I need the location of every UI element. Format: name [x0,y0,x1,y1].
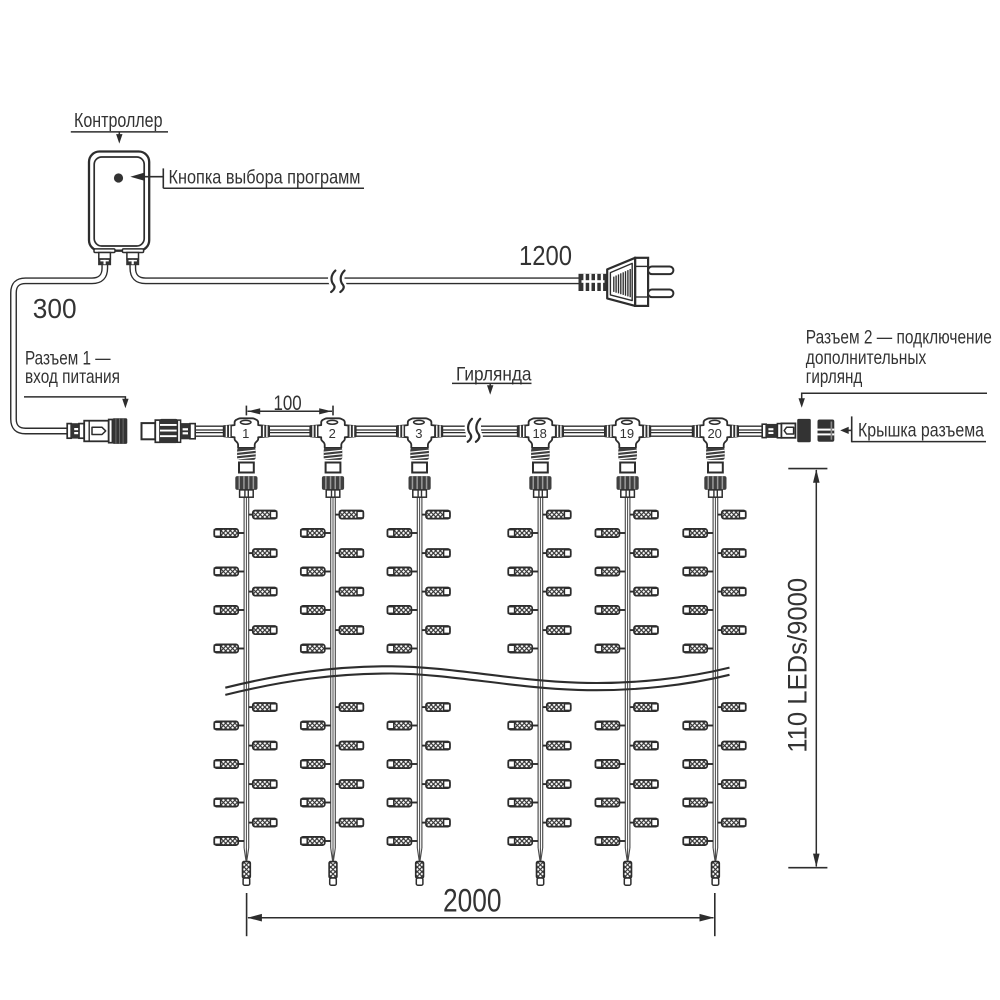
svg-text:18: 18 [532,426,546,441]
svg-text:19: 19 [620,426,634,441]
svg-text:1: 1 [242,426,249,441]
svg-text:2000: 2000 [443,883,502,919]
svg-text:20: 20 [707,426,721,441]
svg-text:3: 3 [415,426,422,441]
svg-text:Крышка разъема: Крышка разъема [858,420,984,442]
svg-text:Разъем 2 — подключение: Разъем 2 — подключение [806,326,992,348]
svg-text:1200: 1200 [519,240,572,271]
svg-text:вход питания: вход питания [25,366,120,388]
svg-text:Контроллер: Контроллер [74,110,163,132]
svg-text:110 LEDs/9000: 110 LEDs/9000 [782,578,812,753]
svg-text:100: 100 [274,391,302,415]
svg-text:2: 2 [329,426,336,441]
svg-text:гирлянд: гирлянд [806,366,863,388]
svg-text:300: 300 [33,293,77,324]
svg-text:Гирлянда: Гирлянда [456,363,532,385]
svg-text:Кнопка выбора программ: Кнопка выбора программ [169,167,361,189]
